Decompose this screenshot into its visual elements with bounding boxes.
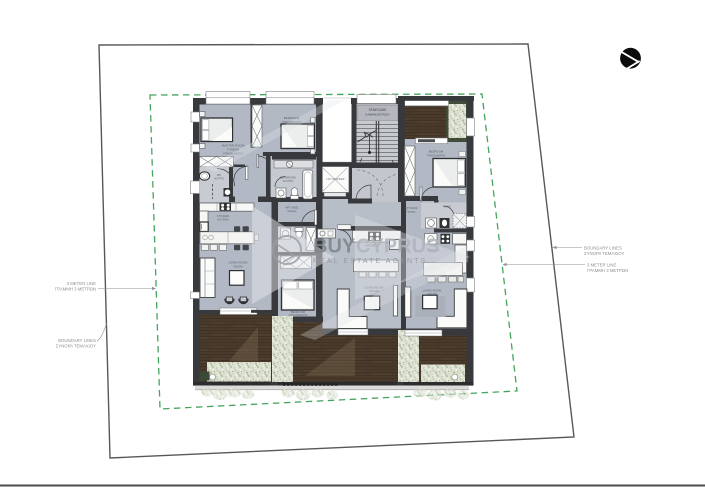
svg-text:BOUNDARY LINES: BOUNDARY LINES bbox=[584, 246, 622, 251]
svg-text:BOUNDARY LINES: BOUNDARY LINES bbox=[58, 338, 96, 343]
svg-text:Όροφος: Όροφος bbox=[406, 210, 417, 213]
svg-text:Όροφος: Όροφος bbox=[286, 209, 297, 213]
svg-text:3 METER LINE: 3 METER LINE bbox=[587, 263, 617, 268]
svg-text:ΚΛΙΜΑΚΟΣΤΑΣΙΟ: ΚΛΙΜΑΚΟΣΤΑΣΙΟ bbox=[365, 113, 390, 117]
svg-text:BATHROOM: BATHROOM bbox=[280, 176, 296, 180]
svg-text:LIVING ROOM: LIVING ROOM bbox=[229, 261, 248, 265]
svg-text:STAIRCASE: STAIRCASE bbox=[369, 108, 387, 112]
svg-text:BUY: BUY bbox=[313, 236, 356, 258]
svg-text:ΓΡΑΜΜΗ 3 ΜΕΤΡΩΝ: ΓΡΑΜΜΗ 3 ΜΕΤΡΩΝ bbox=[587, 268, 628, 273]
svg-text:BEDROOM: BEDROOM bbox=[429, 150, 444, 154]
svg-text:APT M201: APT M201 bbox=[285, 206, 299, 210]
svg-text:ΥΠΝΟΔΩΜΑΤΙΟ: ΥΠΝΟΔΩΜΑΤΙΟ bbox=[288, 313, 307, 317]
svg-text:REAL ESTATE AGENTS: REAL ESTATE AGENTS bbox=[313, 258, 427, 265]
svg-text:ΥΠΝΟΔΩΜΑΤΙΟ: ΥΠΝΟΔΩΜΑΤΙΟ bbox=[426, 153, 445, 157]
svg-text:WASH: WASH bbox=[443, 206, 451, 209]
svg-text:ΣΥΝΟΡΑ ΤΕΜΑΧΙΟΥ: ΣΥΝΟΡΑ ΤΕΜΑΧΙΟΥ bbox=[56, 344, 96, 349]
svg-text:LIFT ΑΣΑΝΣΕΡ: LIFT ΑΣΑΝΣΕΡ bbox=[326, 177, 344, 181]
svg-text:ΛΟΥΤΡΟ: ΛΟΥΤΡΟ bbox=[214, 177, 224, 180]
svg-text:WC: WC bbox=[217, 173, 221, 177]
svg-text:ΚΟΥΖΙΝΑ: ΚΟΥΖΙΝΑ bbox=[217, 217, 228, 221]
svg-text:ΣΑΛΟΝΙ: ΣΑΛΟΝΙ bbox=[233, 264, 243, 268]
svg-text:3 METER LINE: 3 METER LINE bbox=[67, 281, 97, 286]
svg-text:KITCHEN: KITCHEN bbox=[217, 214, 229, 218]
svg-text:CYPRUS: CYPRUS bbox=[356, 236, 439, 258]
svg-text:ΓΡΑΜΜΗ 3 ΜΕΤΡΩΝ: ΓΡΑΜΜΗ 3 ΜΕΤΡΩΝ bbox=[55, 287, 96, 292]
svg-text:ΣΥΝΟΡΑ ΤΕΜΑΧΙΟΥ: ΣΥΝΟΡΑ ΤΕΜΑΧΙΟΥ bbox=[584, 251, 624, 256]
svg-text:LIVING ROOM: LIVING ROOM bbox=[423, 289, 442, 293]
svg-text:APT M202: APT M202 bbox=[405, 206, 418, 210]
svg-text:ΛΟΥΤΡΟ: ΛΟΥΤΡΟ bbox=[283, 180, 293, 183]
